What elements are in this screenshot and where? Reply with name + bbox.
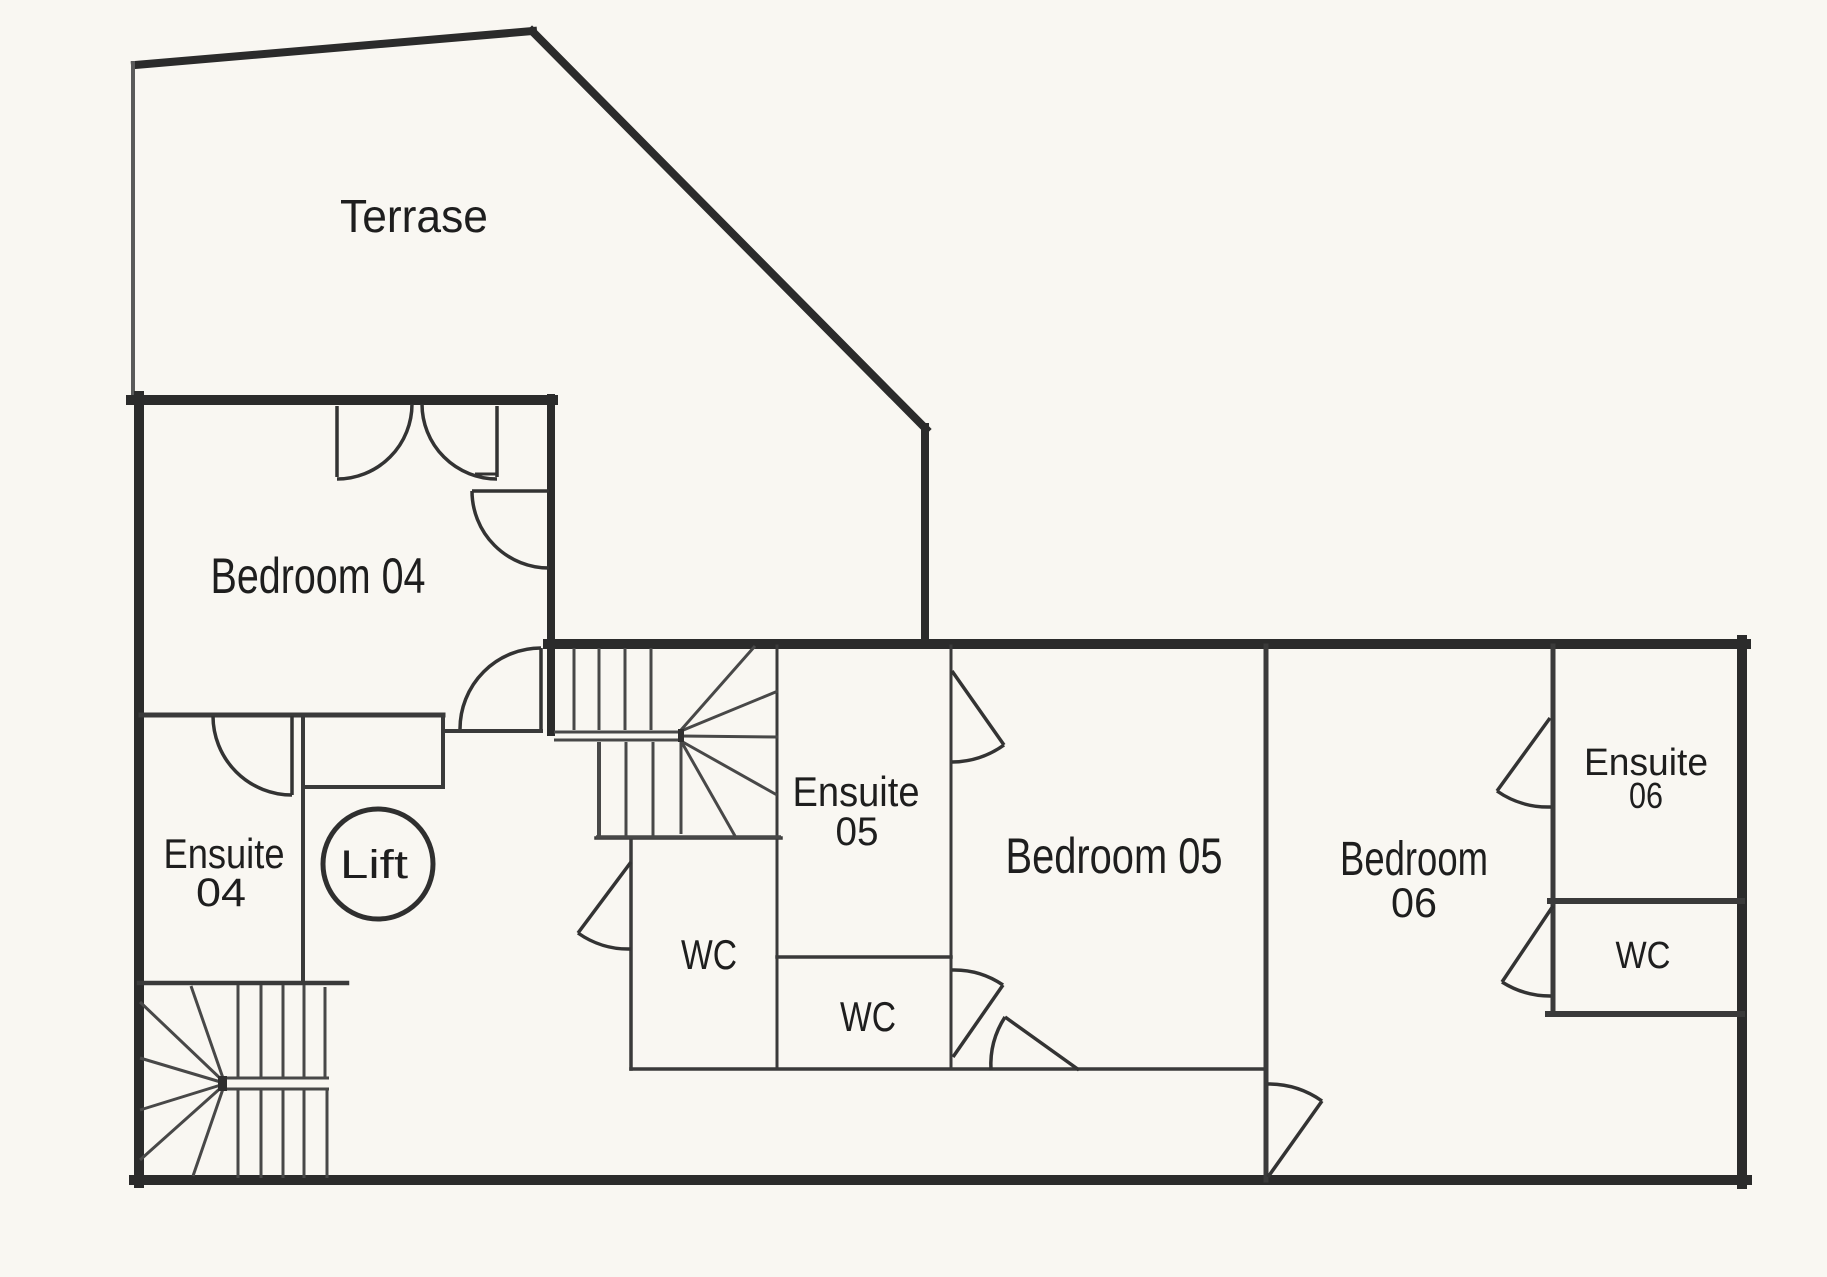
svg-text:06: 06 [1629,775,1663,816]
svg-text:Bedroom 05: Bedroom 05 [1006,828,1223,884]
svg-text:WC: WC [1616,935,1671,977]
svg-text:04: 04 [196,871,246,915]
svg-text:WC: WC [681,931,737,978]
svg-text:Ensuite: Ensuite [164,830,285,877]
svg-text:Ensuite: Ensuite [793,768,920,815]
svg-text:Lift: Lift [340,843,408,887]
svg-text:Bedroom 04: Bedroom 04 [211,548,426,604]
svg-text:05: 05 [836,810,879,854]
svg-text:06: 06 [1391,879,1437,926]
svg-text:WC: WC [840,993,896,1040]
svg-text:Terrase: Terrase [340,190,488,242]
